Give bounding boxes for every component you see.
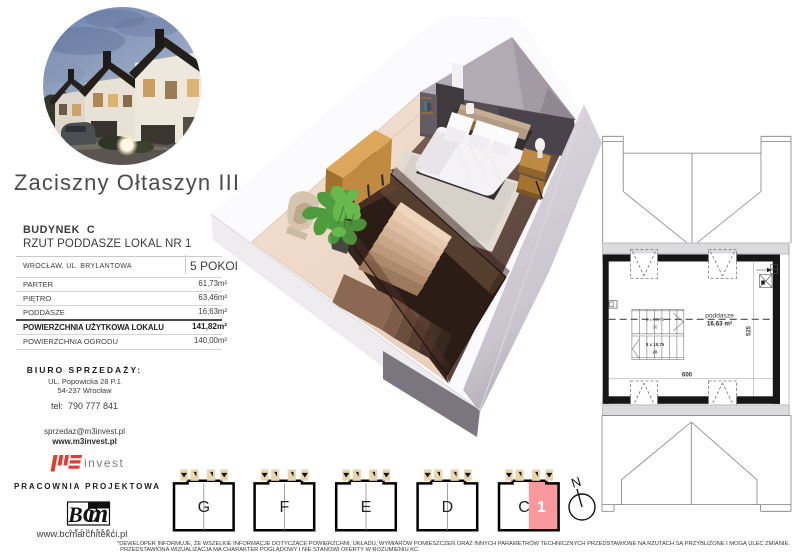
svg-text:F: F xyxy=(280,499,290,516)
svg-text:26: 26 xyxy=(653,350,658,355)
svg-text:525: 525 xyxy=(747,325,753,336)
svg-text:600: 600 xyxy=(682,373,693,379)
svg-text:N: N xyxy=(569,474,583,491)
svg-text:8 x 18,75: 8 x 18,75 xyxy=(646,342,665,347)
svg-text:poddasze: poddasze xyxy=(705,313,734,320)
svg-text:m: m xyxy=(88,499,108,528)
svg-text:G: G xyxy=(198,499,210,516)
svg-text:C: C xyxy=(518,499,530,516)
svg-text:D: D xyxy=(442,499,454,516)
svg-text:E: E xyxy=(361,499,372,516)
svg-text:26: 26 xyxy=(653,325,658,330)
svg-text:16.63 m²: 16.63 m² xyxy=(707,320,732,327)
svg-text:1: 1 xyxy=(537,499,546,516)
svg-text:invest: invest xyxy=(84,456,124,470)
